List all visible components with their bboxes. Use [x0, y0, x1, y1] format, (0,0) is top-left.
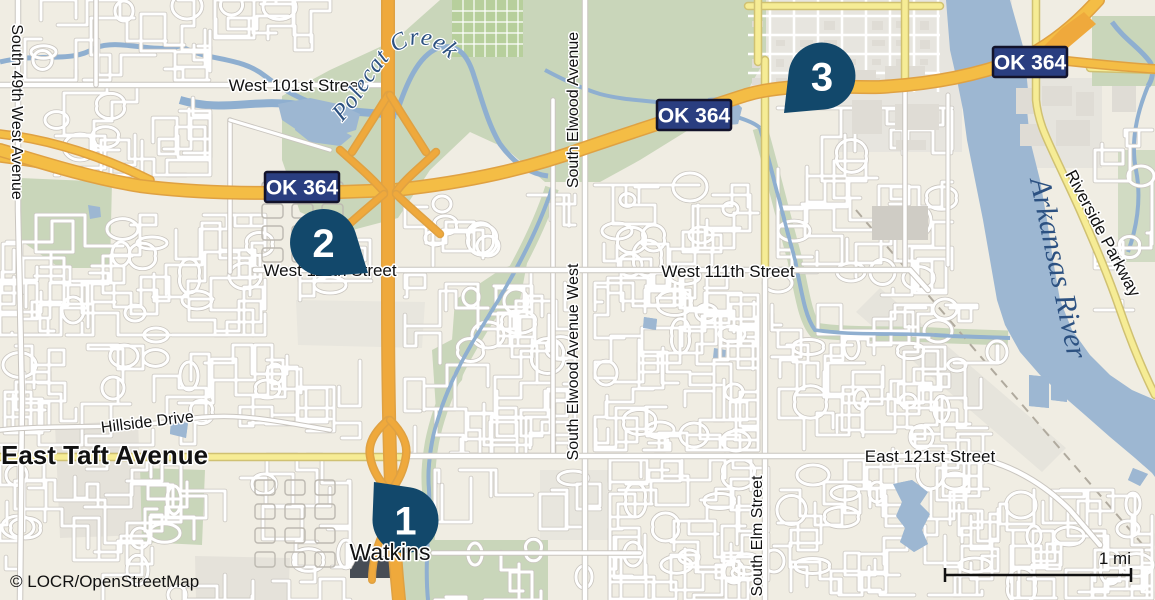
svg-text:South Elwood Avenue: South Elwood Avenue — [565, 32, 582, 188]
svg-text:OK 364: OK 364 — [266, 177, 339, 200]
svg-text:South 49th West Avenue: South 49th West Avenue — [8, 24, 25, 200]
svg-text:East Taft Avenue: East Taft Avenue — [1, 440, 208, 470]
svg-text:3: 3 — [811, 56, 833, 100]
svg-text:West 111th Street: West 111th Street — [661, 262, 795, 281]
svg-text:East 121st Street: East 121st Street — [865, 447, 996, 466]
svg-text:OK 364: OK 364 — [994, 52, 1067, 75]
svg-text:Watkins: Watkins — [350, 539, 431, 565]
svg-text:1: 1 — [394, 500, 416, 544]
svg-text:South Elwood Avenue West: South Elwood Avenue West — [565, 263, 582, 460]
svg-text:1 mi: 1 mi — [1099, 549, 1131, 568]
svg-text:© LOCR/OpenStreetMap: © LOCR/OpenStreetMap — [10, 572, 199, 591]
svg-text:2: 2 — [312, 222, 334, 266]
svg-text:South Elm Street: South Elm Street — [749, 475, 766, 597]
svg-text:OK 364: OK 364 — [658, 105, 731, 128]
